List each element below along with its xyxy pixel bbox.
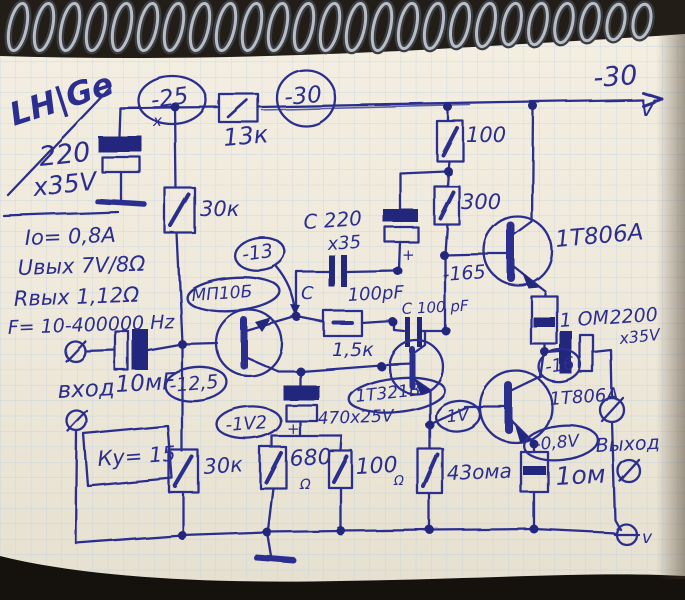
resistor-100-top-label: 100: [466, 123, 506, 147]
voltage-v16: -16: [544, 353, 576, 378]
resistor-680-unit: Ω: [299, 477, 311, 493]
resistor-30k-lower-label: 30к: [203, 452, 244, 479]
voltage-v165: -165: [442, 261, 487, 286]
resistor-43-label: 43ома: [446, 459, 512, 485]
resistor-100e-label: 100: [355, 453, 398, 480]
cap470-plus: +: [287, 420, 300, 438]
transistor-q1-label: МП10Б: [191, 282, 253, 306]
resistor-680-label: 680: [289, 445, 332, 472]
resistor-1om-upper-label: 1 ОМ: [559, 307, 610, 332]
cap470-label: 470х25V: [317, 406, 395, 429]
capA-plus: +: [402, 246, 415, 264]
input-cap-plate: [132, 329, 148, 370]
voltage-v30-circle: -30: [283, 82, 323, 111]
capA-label: С 220: [303, 206, 363, 234]
notebook-photo: LH|Ge 220 х35V -25 х 13к -30 -30 V Iо= 0…: [0, 0, 685, 600]
schematic-canvas: LH|Ge 220 х35V -25 х 13к -30 -30 V Iо= 0…: [0, 0, 685, 600]
resistor-1om-lower-label: 1ом: [555, 459, 607, 491]
resistor-1k5-label: 1,5к: [332, 339, 374, 361]
spec-current: Iо= 0,8A: [24, 223, 116, 250]
resistor-13k-label: 13к: [222, 120, 270, 152]
capB-value: 100pF: [347, 282, 405, 306]
voltage-v25: -25: [149, 83, 190, 114]
resistor-300-label: 300: [461, 190, 501, 214]
voltage-v13: -13: [241, 240, 275, 266]
capB-c: С: [301, 283, 314, 304]
x-mark: х: [152, 112, 162, 130]
voltage-v1: -1V: [439, 405, 471, 428]
input-cap-label: 10мF: [115, 369, 177, 398]
input-label: вход: [57, 375, 115, 404]
resistor-100e-unit: Ω: [393, 474, 404, 489]
capA-voltage: х35: [326, 232, 362, 255]
voltage-v1v2: -1V2: [225, 412, 268, 436]
spec-rout: Rвых 1,12Ω: [13, 283, 139, 311]
output-label: Выход: [595, 432, 660, 457]
rail-voltage: -30: [592, 60, 638, 94]
resistor-30k-upper-label: 30к: [200, 197, 240, 221]
voltage-v0-8: -0,8V: [534, 431, 582, 455]
voltage-v12-5: -12,5: [169, 371, 220, 397]
spec-uout: Uвых 7V/8Ω: [17, 252, 145, 280]
ground-terminal-label: v: [642, 528, 653, 548]
rail-unit: V: [640, 97, 657, 122]
capC-label: С 100 pF: [401, 297, 469, 318]
